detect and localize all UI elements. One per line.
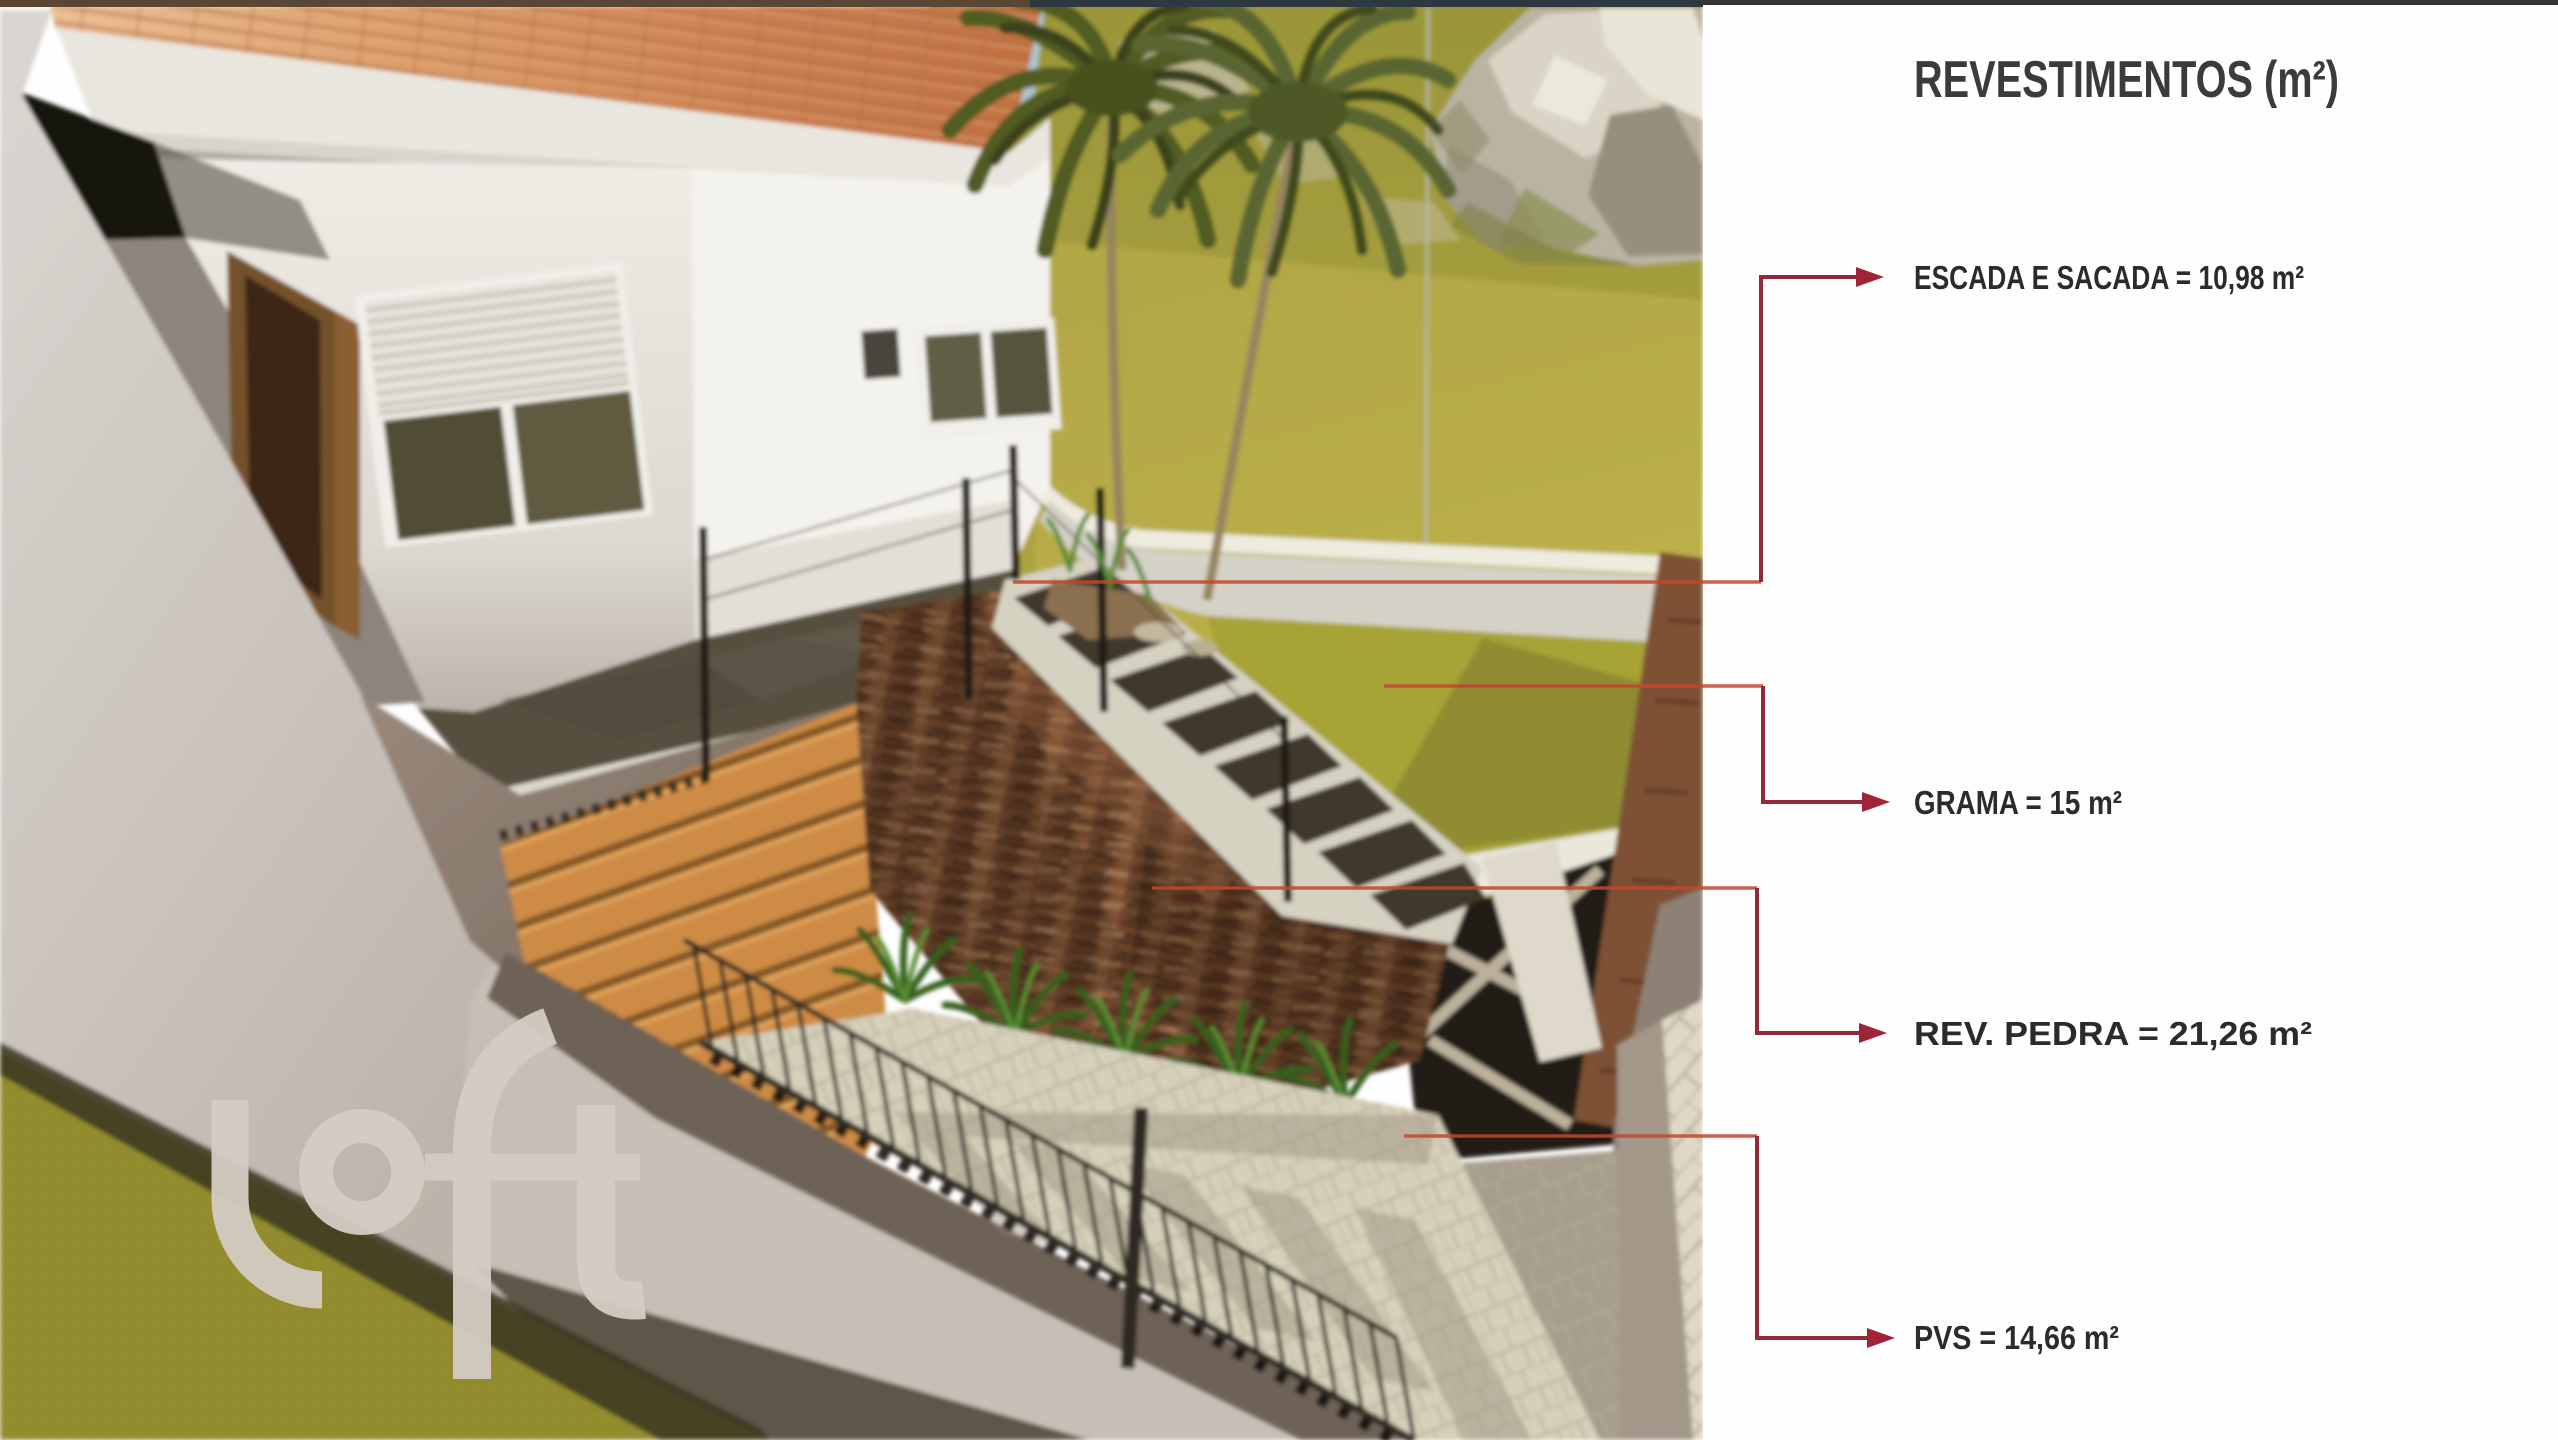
svg-text:PVS = 14,66 m²: PVS = 14,66 m² (1914, 1319, 2119, 1356)
svg-text:GRAMA = 15 m²: GRAMA = 15 m² (1914, 784, 2122, 821)
svg-text:ESCADA E SACADA = 10,98 m²: ESCADA E SACADA = 10,98 m² (1914, 259, 2304, 296)
svg-text:REVESTIMENTOS (m²): REVESTIMENTOS (m²) (1914, 51, 2339, 109)
svg-text:REV. PEDRA = 21,26 m²: REV. PEDRA = 21,26 m² (1914, 1015, 2312, 1052)
